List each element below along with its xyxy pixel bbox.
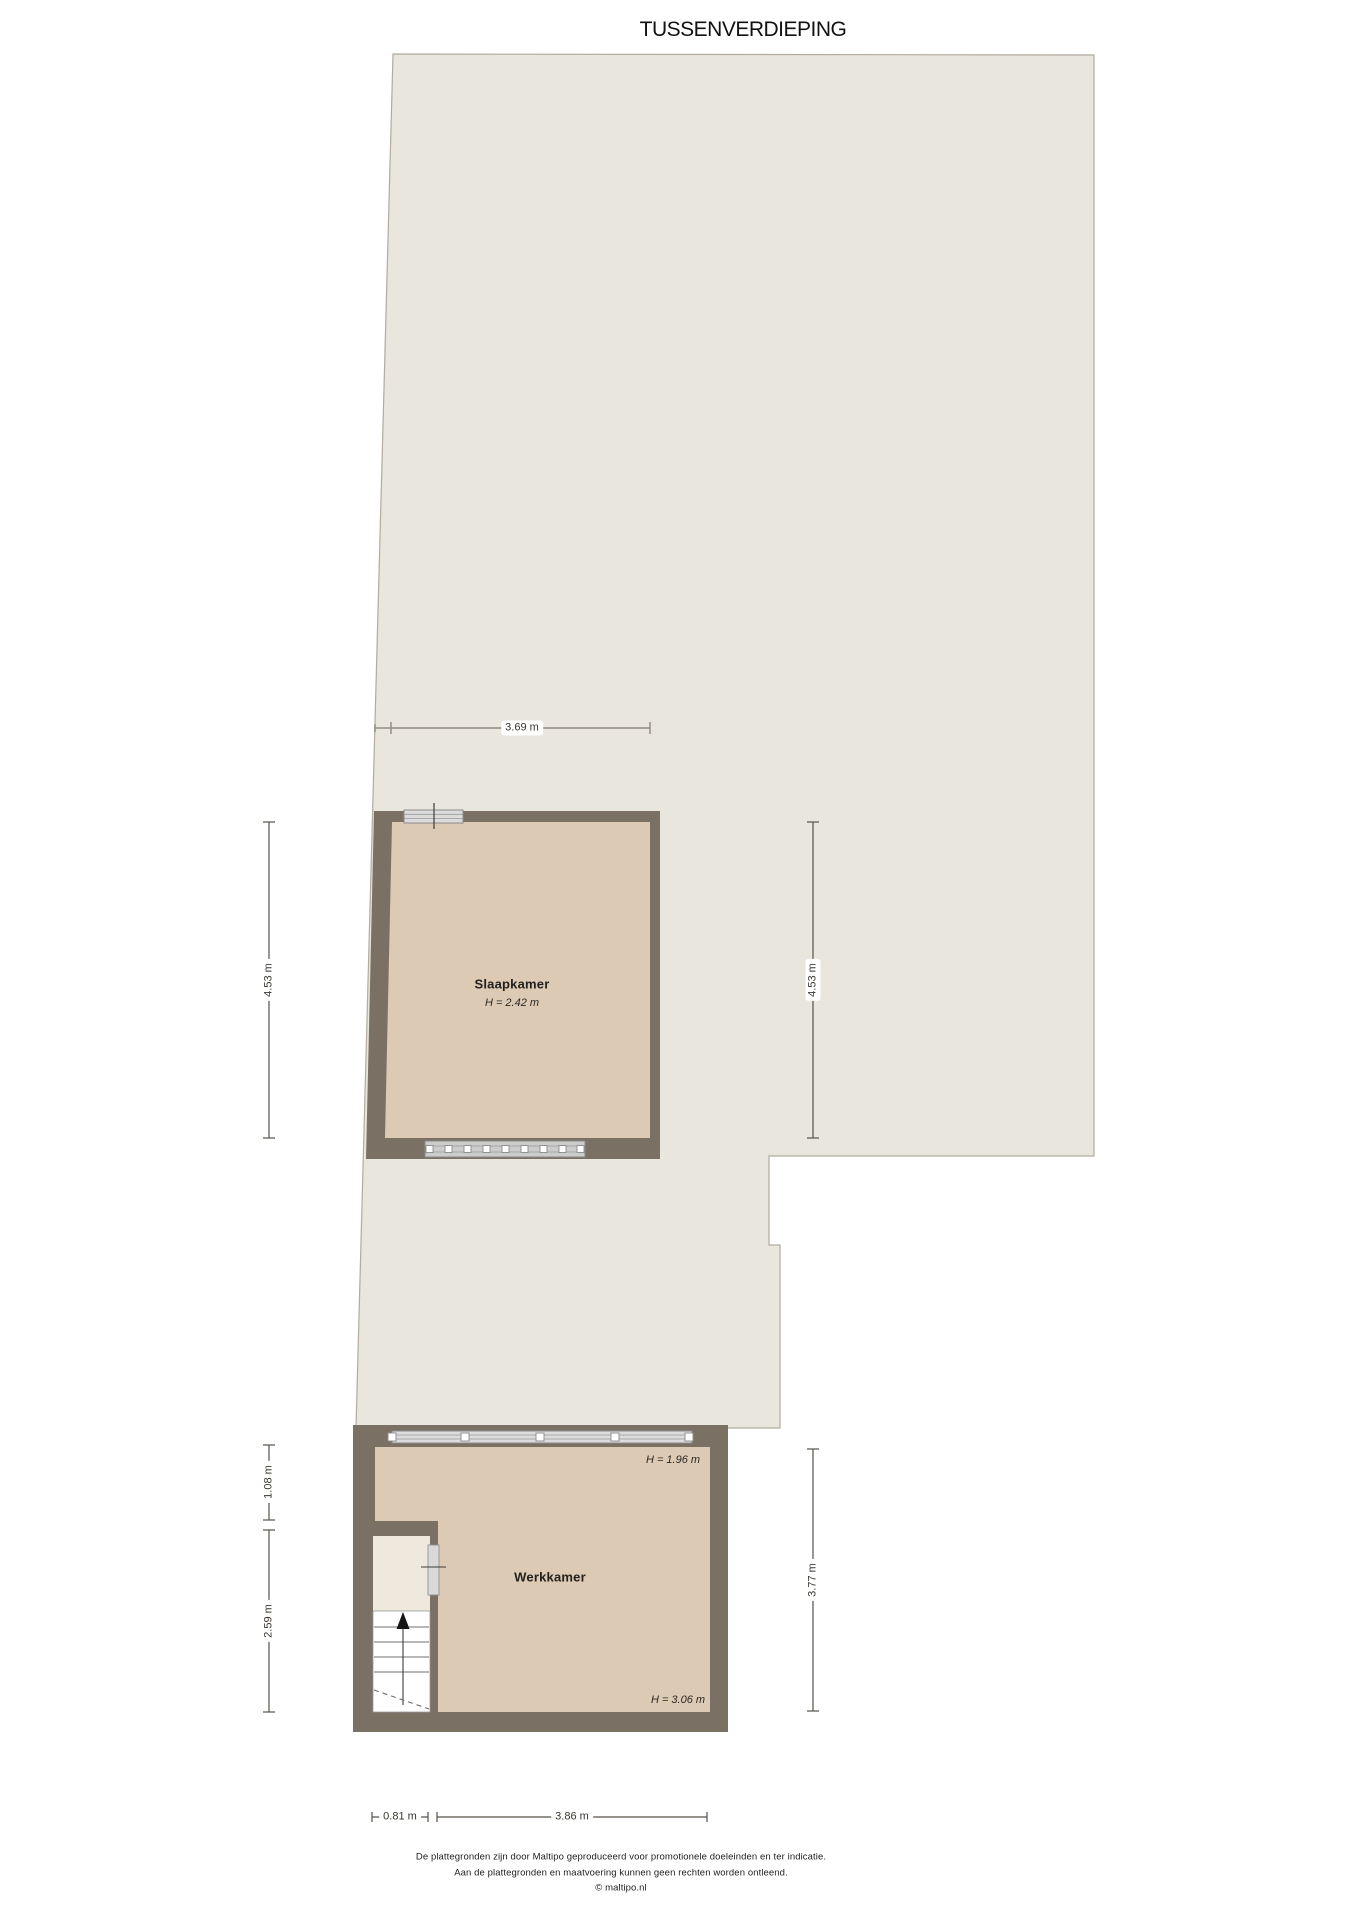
floorplan-page: TUSSENVERDIEPING 3.69 m 4.53 m 4.53 m Sl…	[0, 0, 1358, 1920]
footer-disclaimer-line1: De plattegronden zijn door Maltipo gepro…	[416, 1852, 826, 1863]
dimension-label-closet-depth: 1.08 m	[262, 1461, 277, 1503]
footer-disclaimer-line2: Aan de plattegronden en maatvoering kunn…	[454, 1868, 788, 1879]
room-ceiling-low-label-werkkamer: H = 1.96 m	[646, 1454, 700, 1466]
room-ceiling-high-label-werkkamer: H = 3.06 m	[651, 1694, 705, 1706]
closet-top-wall	[355, 1521, 438, 1536]
werkkamer-top-window-symbol	[388, 1431, 693, 1443]
closet-area	[373, 1536, 430, 1611]
room-ceiling-label-slaapkamer: H = 2.42 m	[485, 997, 539, 1009]
dimension-label-werkkamer-width: 3.86 m	[551, 1810, 593, 1825]
dimension-label-slaapkamer-depth-left: 4.53 m	[262, 959, 277, 1001]
footer-copyright: © maltipo.nl	[595, 1883, 647, 1894]
dimension-label-stair-depth: 2.59 m	[262, 1600, 277, 1642]
dimension-label-werkkamer-depth: 3.77 m	[806, 1559, 821, 1601]
slaapkamer-bottom-window-symbol	[425, 1141, 585, 1157]
open-area-outline	[356, 54, 1094, 1428]
room-label-slaapkamer: Slaapkamer	[475, 977, 550, 992]
dimension-label-stair-width: 0.81 m	[379, 1810, 421, 1825]
dimension-label-open-area-depth-right: 4.53 m	[806, 959, 821, 1001]
room-label-werkkamer: Werkkamer	[514, 1570, 586, 1585]
page-title: TUSSENVERDIEPING	[640, 18, 847, 42]
dimension-label-slaapkamer-width: 3.69 m	[501, 721, 543, 736]
floorplan-canvas	[0, 0, 1358, 1920]
